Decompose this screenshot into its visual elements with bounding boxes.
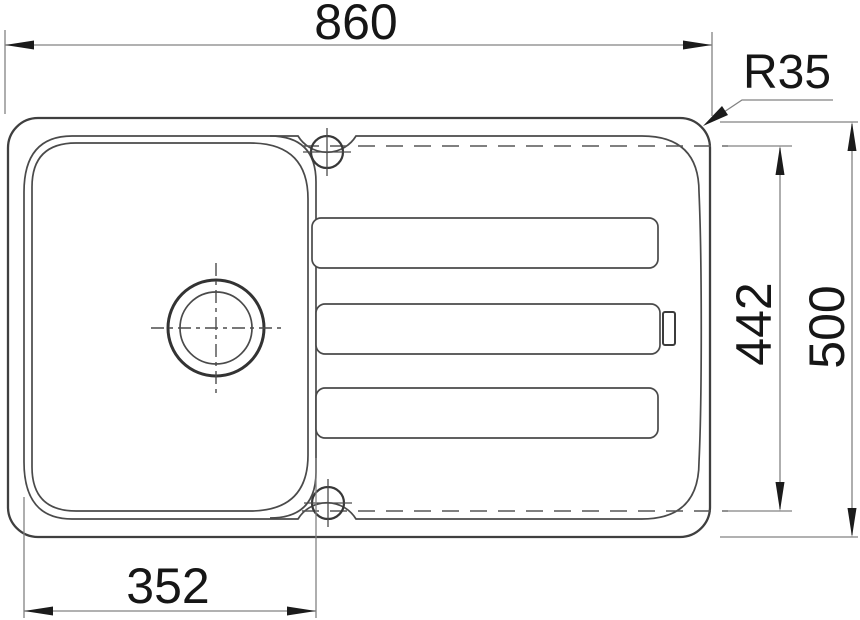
- arrowhead-up: [848, 122, 857, 151]
- dimension-r35: R35: [703, 46, 833, 126]
- dimension-label-442: 442: [726, 282, 782, 365]
- dimension-label-352: 352: [126, 558, 209, 614]
- arrowhead-left: [5, 41, 34, 50]
- arrowhead-right: [287, 607, 316, 616]
- arrowhead-left: [24, 607, 53, 616]
- drainboard-groove-middle: [316, 304, 660, 354]
- drainboard-groove-top: [312, 218, 658, 268]
- arrowhead-right: [683, 41, 712, 50]
- dimension-442: 442: [722, 146, 792, 511]
- drainboard-groove-bottom: [316, 388, 658, 438]
- arrowhead-r35: [703, 106, 728, 126]
- arrowhead-down: [776, 482, 785, 511]
- dimension-label-500: 500: [799, 285, 855, 368]
- sink-technical-drawing: 860 R35 442 500 352: [0, 0, 860, 620]
- drawing-canvas: 860 R35 442 500 352: [0, 0, 860, 620]
- arrowhead-up: [776, 146, 785, 175]
- dimension-label-r35: R35: [743, 46, 831, 99]
- dimension-label-860: 860: [314, 0, 397, 50]
- arrowhead-down: [848, 508, 857, 537]
- dimension-860: 860: [5, 0, 712, 116]
- groove-end-tab: [663, 312, 675, 345]
